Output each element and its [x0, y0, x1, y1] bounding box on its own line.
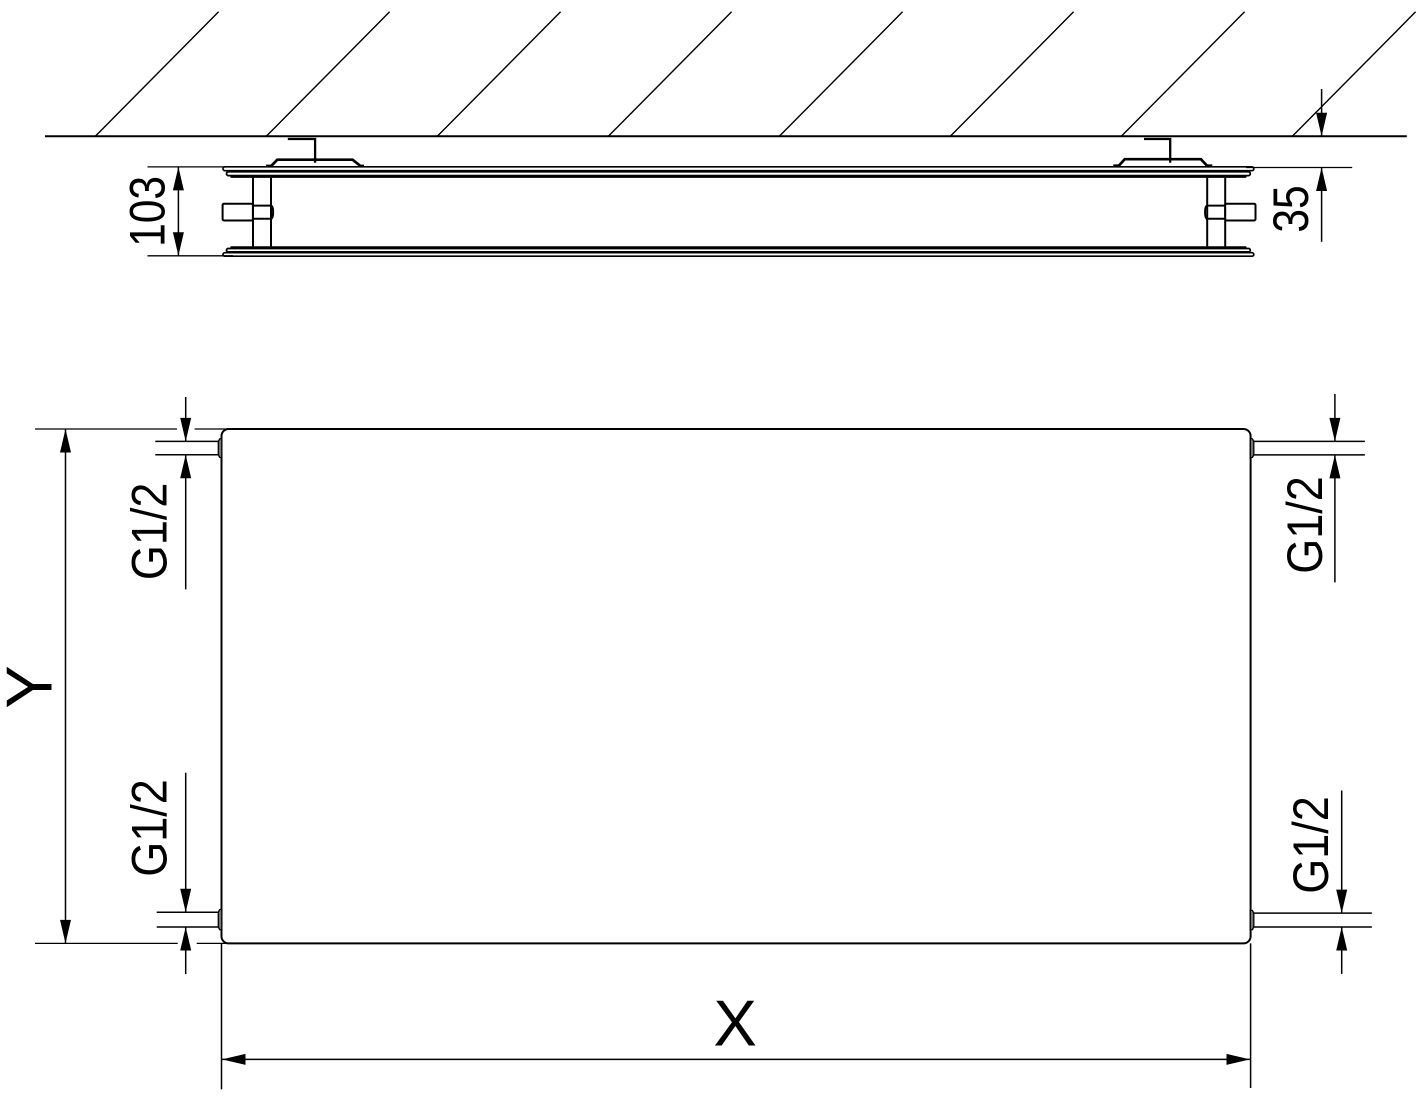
svg-text:Y: Y — [0, 665, 66, 708]
svg-text:103: 103 — [119, 176, 175, 247]
svg-text:X: X — [714, 986, 757, 1059]
svg-text:G1/2: G1/2 — [1278, 476, 1334, 574]
svg-text:G1/2: G1/2 — [122, 779, 178, 877]
svg-text:G1/2: G1/2 — [1284, 796, 1340, 894]
svg-text:35: 35 — [1263, 185, 1319, 232]
svg-text:G1/2: G1/2 — [122, 483, 178, 581]
